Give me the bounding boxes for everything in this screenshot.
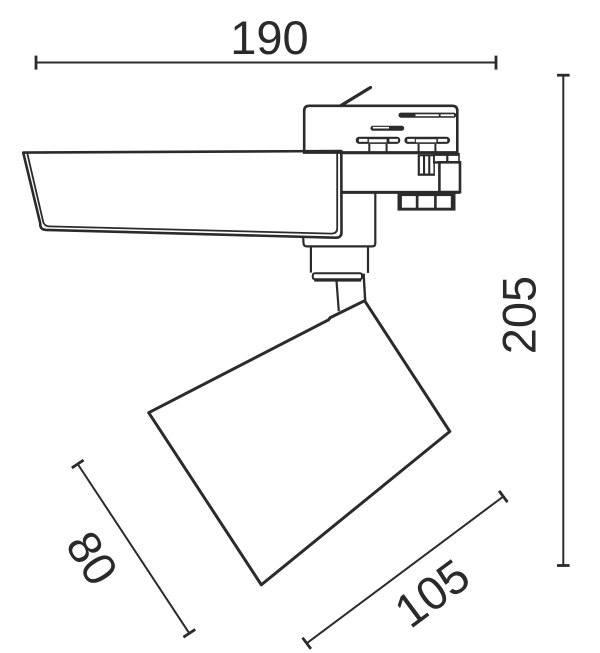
svg-text:105: 105 [385,548,480,637]
svg-text:205: 205 [492,276,545,354]
svg-text:190: 190 [230,11,308,64]
svg-text:80: 80 [56,522,129,595]
